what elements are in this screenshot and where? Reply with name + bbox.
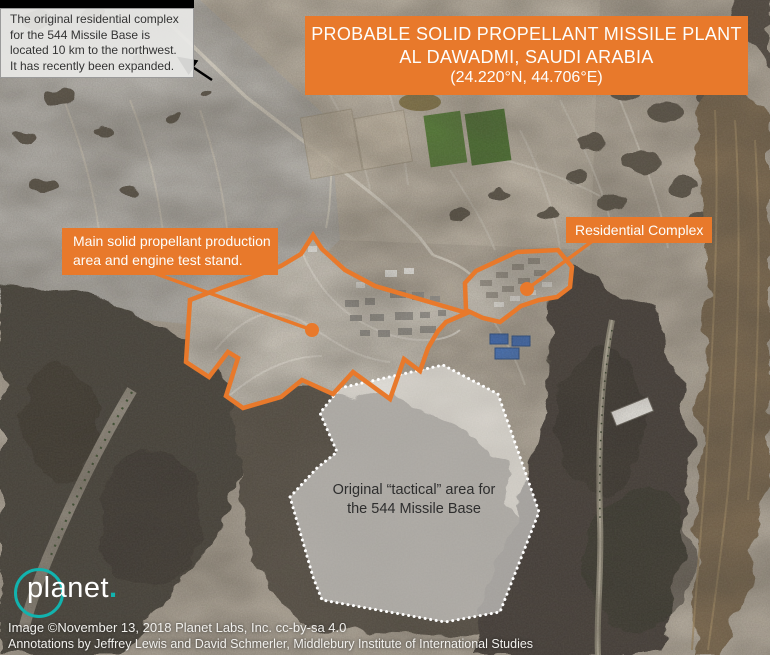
main-area-leader-dot: [305, 323, 319, 337]
annotation-layer: [0, 0, 770, 655]
title-line-1: PROBABLE SOLID PROPELLANT MISSILE PLANT: [305, 23, 748, 46]
image-credits: Image ©November 13, 2018 Planet Labs, In…: [8, 619, 533, 653]
callout-top-bar: [0, 0, 194, 8]
residential-label: Residential Complex: [566, 217, 712, 243]
title-coordinates: (24.220°N, 44.706°E): [305, 68, 748, 89]
credit-line-1: Image ©November 13, 2018 Planet Labs, In…: [8, 619, 533, 636]
callout-text: The original residential complex for the…: [10, 12, 179, 73]
title-line-2: AL DAWADMI, SAUDI ARABIA: [305, 46, 748, 69]
title-banner: PROBABLE SOLID PROPELLANT MISSILE PLANT …: [305, 16, 748, 95]
main-area-label-line-1: Main solid propellant production: [73, 232, 272, 251]
credit-line-2: Annotations by Jeffrey Lewis and David S…: [8, 636, 533, 653]
main-area-label: Main solid propellant production area an…: [62, 228, 278, 275]
tactical-area-label: Original “tactical” area for the 544 Mis…: [322, 481, 506, 518]
callout-note: The original residential complex for the…: [0, 8, 194, 78]
main-area-label-line-2: area and engine test stand.: [73, 251, 272, 270]
residential-outline: [465, 250, 572, 322]
residential-label-text: Residential Complex: [575, 222, 703, 238]
planet-wordmark: planet.: [27, 572, 118, 605]
planet-wordmark-text: planet: [27, 572, 109, 604]
annotated-satellite-image: The original residential complex for the…: [0, 0, 770, 655]
planet-logo: planet.: [12, 566, 152, 618]
residential-leader-dot: [520, 282, 534, 296]
planet-wordmark-dot: .: [109, 572, 118, 604]
